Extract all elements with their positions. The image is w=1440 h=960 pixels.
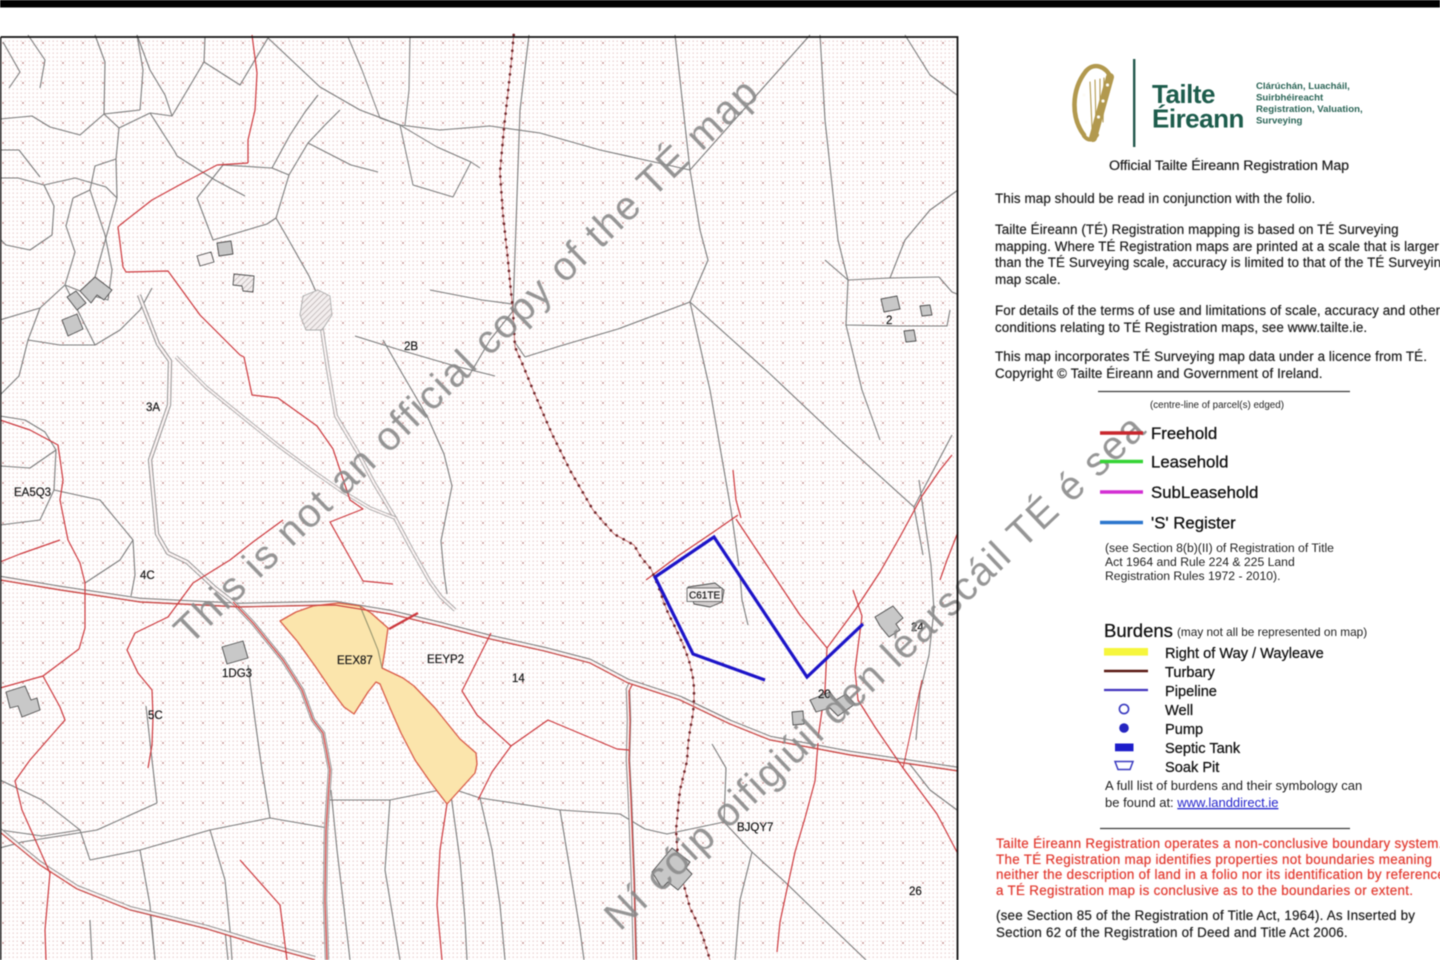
svg-text:5C: 5C: [148, 710, 163, 722]
svg-text:EEX87: EEX87: [337, 655, 373, 667]
svg-text:1DG3: 1DG3: [222, 668, 252, 680]
svg-text:Act 1964 and Rule 224 & 225 La: Act 1964 and Rule 224 & 225 Land: [1105, 555, 1295, 569]
svg-text:(may not all be represented on: (may not all be represented on map): [1177, 625, 1367, 639]
svg-text:(see Section 8(b)(II) of Regis: (see Section 8(b)(II) of Registration of…: [1105, 541, 1334, 555]
svg-text:be found at: www.landdirect.ie: be found at: www.landdirect.ie: [1105, 795, 1278, 810]
svg-text:14: 14: [512, 673, 525, 685]
svg-text:EEYP2: EEYP2: [427, 654, 464, 666]
svg-text:'S' Register: 'S' Register: [1151, 514, 1236, 533]
svg-text:Pump: Pump: [1165, 722, 1203, 738]
svg-text:C61TE: C61TE: [689, 591, 720, 602]
svg-text:A full list of burdens and the: A full list of burdens and their symbolo…: [1105, 778, 1362, 793]
svg-text:Pipeline: Pipeline: [1165, 684, 1217, 700]
svg-text:Registration Rules 1972 - 2010: Registration Rules 1972 - 2010).: [1105, 569, 1280, 583]
svg-text:Surveying: Surveying: [1256, 116, 1303, 127]
svg-text:Soak Pit: Soak Pit: [1165, 760, 1219, 776]
svg-text:Turbary: Turbary: [1165, 665, 1215, 681]
svg-text:SubLeasehold: SubLeasehold: [1151, 483, 1258, 502]
svg-text:4C: 4C: [140, 570, 155, 582]
svg-text:Clárúchán, Luacháil,: Clárúchán, Luacháil,: [1256, 81, 1350, 92]
svg-text:Leasehold: Leasehold: [1151, 453, 1228, 472]
svg-text:Éireann: Éireann: [1152, 104, 1244, 134]
svg-text:Right of Way / Wayleave: Right of Way / Wayleave: [1165, 646, 1324, 662]
svg-text:Well: Well: [1165, 703, 1193, 719]
svg-text:26: 26: [909, 886, 922, 898]
svg-text:Suirbhéireacht: Suirbhéireacht: [1256, 93, 1324, 104]
svg-text:Septic Tank: Septic Tank: [1165, 741, 1241, 757]
svg-text:2B: 2B: [404, 341, 418, 353]
svg-text:2: 2: [886, 315, 892, 327]
svg-text:Burdens: Burdens: [1104, 620, 1173, 641]
svg-text:3A: 3A: [146, 402, 160, 414]
svg-text:Registration, Valuation,: Registration, Valuation,: [1256, 104, 1363, 115]
svg-text:EA5Q3: EA5Q3: [14, 487, 51, 499]
svg-text:Freehold: Freehold: [1151, 424, 1217, 443]
svg-text:(centre-line of parcel(s) edge: (centre-line of parcel(s) edged): [1150, 400, 1284, 411]
